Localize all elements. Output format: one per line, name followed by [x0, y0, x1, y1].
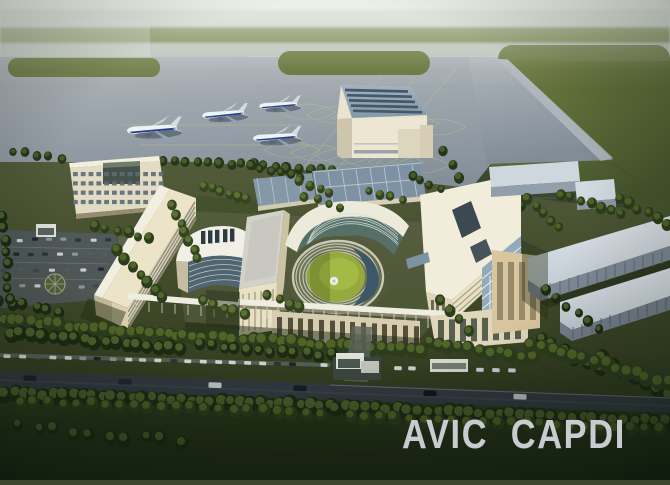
svg-text:AVIC CAPDI: AVIC CAPDI: [402, 411, 626, 457]
